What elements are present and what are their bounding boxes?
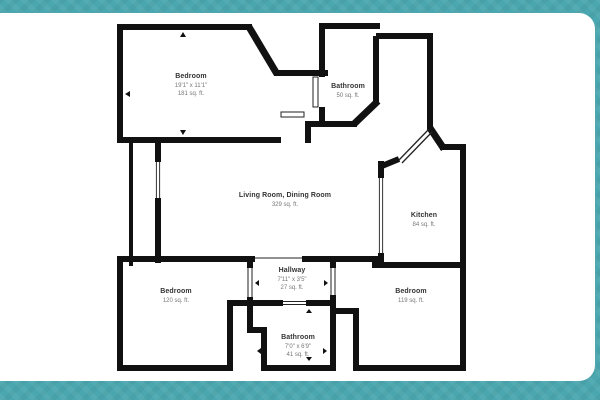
dimension-arrow-icon — [306, 357, 312, 361]
dimension-arrow-icon — [323, 348, 327, 354]
walls — [117, 23, 466, 371]
dimension-arrow-icon — [324, 280, 328, 286]
dimension-arrow-icon — [125, 91, 130, 97]
bedroom-top-door-leaf-icon — [281, 112, 304, 117]
hallway-door-jambs — [248, 258, 335, 305]
bathroom-top-door-leaf-icon — [313, 77, 318, 107]
chamfer-walls — [249, 27, 444, 166]
floorplan-page: Bedroom 19'1" x 11'1" 181 sq. ft. Bathro… — [0, 0, 600, 400]
dimension-arrow-icon — [180, 130, 186, 135]
doors — [248, 77, 432, 305]
dimension-arrow-icon — [306, 309, 312, 313]
windows — [156, 162, 382, 253]
dimension-arrow-icon — [180, 32, 186, 37]
floorplan-drawing — [0, 0, 600, 400]
dimension-arrow-icon — [255, 280, 259, 286]
dimension-arrows — [125, 32, 328, 361]
dimension-arrow-icon — [257, 348, 261, 354]
kitchen-door-leaf-icon — [399, 129, 432, 163]
